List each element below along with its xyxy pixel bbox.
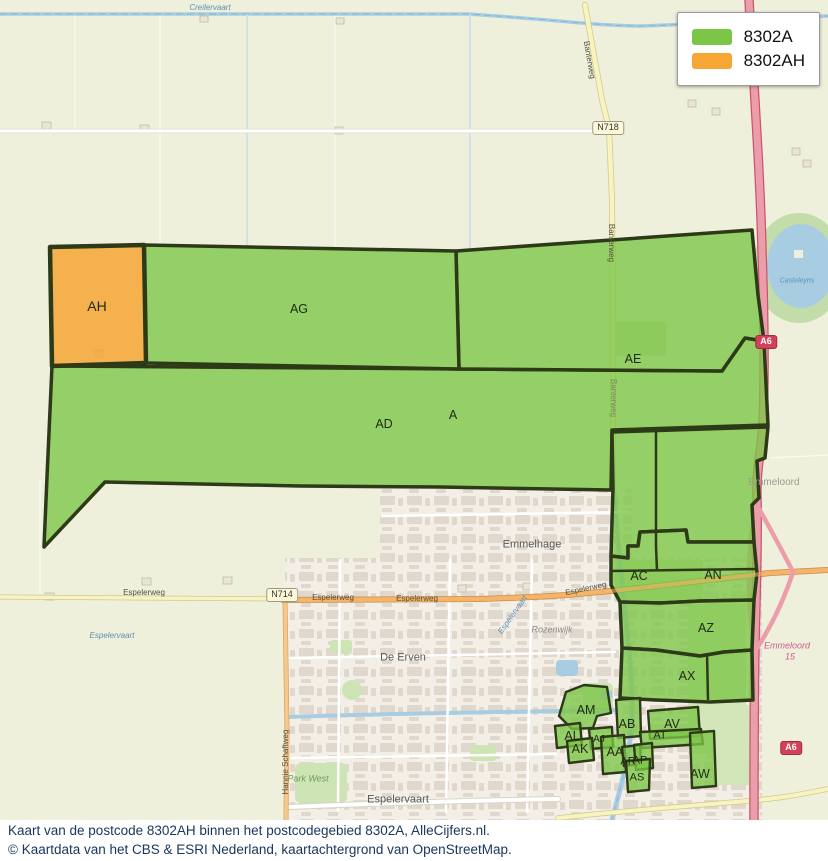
legend-swatch-orange	[692, 53, 732, 69]
page: AHAGAEADAACANAZAXAMABAVATALAJAKAAARAPASA…	[0, 0, 828, 861]
region-polygon-ag	[144, 245, 459, 369]
region-polygon-column-upper	[611, 427, 768, 558]
caption-line-1: Kaart van de postcode 8302AH binnen het …	[8, 820, 828, 841]
legend-swatch-green	[692, 29, 732, 45]
map-legend: 8302A 8302AH	[677, 12, 820, 86]
region-polygon-ax	[620, 648, 753, 702]
map-background	[0, 0, 828, 820]
caption-line-2: © Kaartdata van het CBS & ESRI Nederland…	[8, 841, 828, 860]
legend-row-8302a: 8302A	[692, 27, 805, 47]
map-caption: Kaart van de postcode 8302AH binnen het …	[0, 820, 828, 861]
region-polygon-ae	[456, 230, 764, 371]
legend-label-8302a: 8302A	[744, 27, 793, 47]
legend-row-8302ah: 8302AH	[692, 51, 805, 71]
legend-label-8302ah: 8302AH	[744, 51, 805, 71]
map-canvas: AHAGAEADAACANAZAXAMABAVATALAJAKAAARAPASA…	[0, 0, 828, 820]
region-polygon-ah	[50, 245, 146, 366]
